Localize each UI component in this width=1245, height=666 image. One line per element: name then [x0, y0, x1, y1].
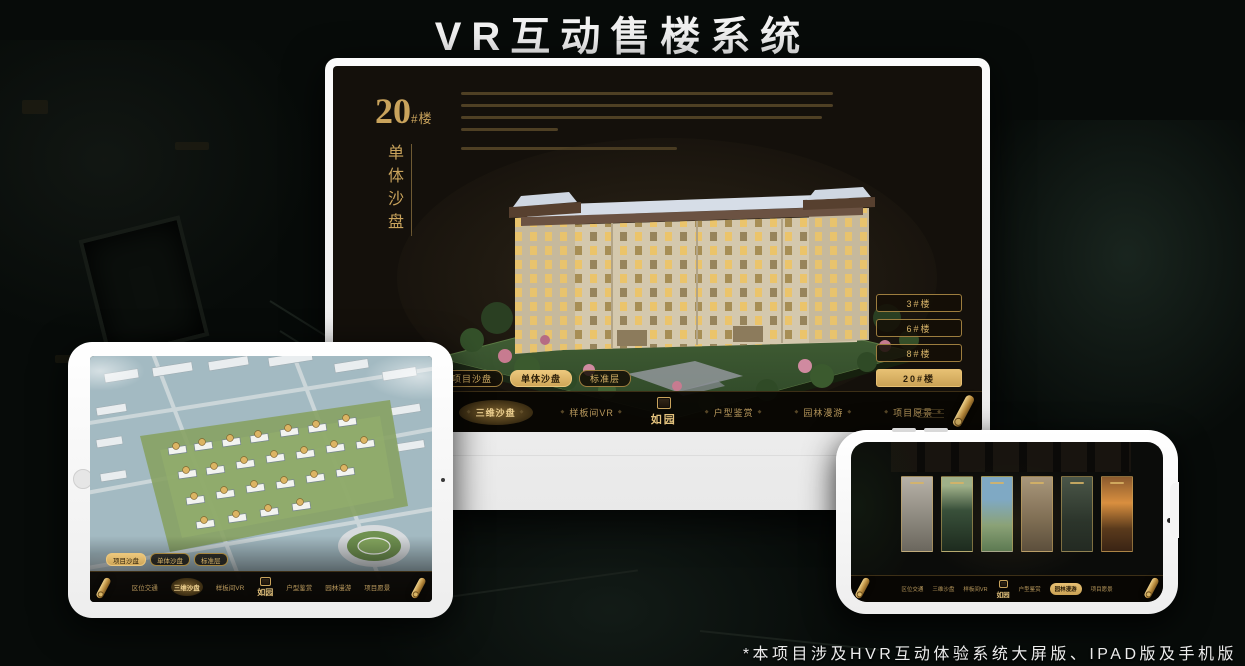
mode-tab-group: 项目沙盘 单体沙盘 标准层 [441, 370, 631, 387]
floor-button-20[interactable]: 20#楼 [876, 369, 962, 387]
tablet-bottom-nav: 区位交通 三维沙盘 样板间VR 如园 户型鉴赏 园林漫游 项目愿景 [90, 571, 432, 602]
nav-item-floorplans[interactable]: 户型鉴赏 [701, 406, 767, 419]
nav-item-project-vision[interactable]: 项目愿景 [364, 582, 390, 592]
page-title: VR互动售楼系统 [0, 4, 1245, 62]
gallery-panel-facade[interactable] [1021, 476, 1053, 552]
phone-volume-button[interactable] [924, 428, 948, 432]
gallery-panel-interior[interactable] [1101, 476, 1133, 552]
background-gold-label [22, 100, 48, 114]
tablet-tab-standard-floor[interactable]: 标准层 [194, 553, 228, 566]
floor-button-6[interactable]: 6#楼 [876, 319, 962, 337]
phone-gallery-panels [901, 476, 1133, 552]
background-buildings-right [950, 120, 1245, 460]
brand-logo[interactable]: 如园 [257, 577, 273, 598]
scroll-waves-decor [918, 406, 944, 420]
nav-item-floorplans[interactable]: 户型鉴赏 [286, 582, 312, 592]
nav-item-3d-sandtable[interactable]: 三维沙盘 [932, 585, 954, 593]
phone-notch [1170, 482, 1179, 538]
floor-button-3[interactable]: 3#楼 [876, 294, 962, 312]
nav-item-showroom-vr[interactable]: 样板间VR [557, 406, 627, 419]
floor-button-group: 3#楼 6#楼 8#楼 20#楼 [876, 294, 962, 387]
brand-logo[interactable]: 如园 [997, 580, 1010, 599]
phone-pergola-beams [891, 442, 1131, 472]
nav-item-showroom-vr[interactable]: 样板间VR [963, 585, 987, 593]
gallery-panel-aerial[interactable] [981, 476, 1013, 552]
nav-item-location[interactable]: 区位交通 [901, 585, 923, 593]
nav-item-garden-roam[interactable]: 园林漫游 [790, 406, 856, 419]
tablet-device: 项目沙盘 单体沙盘 标准层 区位交通 三维沙盘 样板间VR 如园 户型鉴赏 园林… [68, 342, 453, 618]
phone-device: 区位交通 三维沙盘 样板间VR 如园 户型鉴赏 园林漫游 项目愿景 [836, 430, 1178, 614]
nav-item-showroom-vr[interactable]: 样板间VR [216, 582, 245, 592]
tablet-tab-single-sandtable[interactable]: 单体沙盘 [150, 553, 190, 566]
brand-seal-icon [657, 397, 671, 409]
background-framed-sign [79, 215, 210, 360]
brand-logo-text: 如园 [257, 587, 273, 598]
phone-bottom-nav: 区位交通 三维沙盘 样板间VR 如园 户型鉴赏 园林漫游 项目愿景 [851, 575, 1163, 602]
gallery-panel-courtyard[interactable] [901, 476, 933, 552]
tab-standard-floor[interactable]: 标准层 [579, 370, 631, 387]
brand-logo[interactable]: 如园 [651, 397, 677, 427]
footnote-text: *本项目涉及HVR互动体验系统大屏版、IPAD版及手机版 [743, 640, 1237, 664]
floor-button-8[interactable]: 8#楼 [876, 344, 962, 362]
nav-item-3d-sandtable[interactable]: 三维沙盘 [171, 578, 203, 596]
tablet-camera-dot [441, 478, 445, 482]
description-line [461, 104, 833, 107]
phone-screen: 区位交通 三维沙盘 样板间VR 如园 户型鉴赏 园林漫游 项目愿景 [851, 442, 1163, 602]
nav-item-project-vision[interactable]: 项目愿景 [1091, 585, 1113, 593]
nav-item-garden-roam[interactable]: 园林漫游 [325, 582, 351, 592]
description-line [461, 92, 833, 95]
tablet-screen: 项目沙盘 单体沙盘 标准层 区位交通 三维沙盘 样板间VR 如园 户型鉴赏 园林… [90, 356, 432, 602]
brand-seal-icon [260, 577, 271, 586]
brand-logo-text: 如园 [651, 411, 677, 427]
phone-volume-button[interactable] [892, 428, 916, 432]
tablet-mode-tab-group: 项目沙盘 单体沙盘 标准层 [106, 553, 228, 566]
gallery-panel-garden[interactable] [941, 476, 973, 552]
background-map-left [0, 40, 320, 340]
tablet-tab-project-sandtable[interactable]: 项目沙盘 [106, 553, 146, 566]
nav-item-garden-roam[interactable]: 园林漫游 [1050, 583, 1082, 595]
gallery-panel-path[interactable] [1061, 476, 1093, 552]
nav-item-floorplans[interactable]: 户型鉴赏 [1019, 585, 1041, 593]
poster-stage: VR互动售楼系统 20#楼 单体沙盘 [0, 0, 1245, 666]
tab-single-sandtable[interactable]: 单体沙盘 [510, 370, 572, 387]
background-gold-label [175, 142, 209, 150]
brand-seal-icon [999, 580, 1008, 588]
nav-item-location[interactable]: 区位交通 [132, 582, 158, 592]
brand-logo-text: 如园 [997, 589, 1010, 599]
nav-item-3d-sandtable[interactable]: 三维沙盘 [459, 400, 533, 425]
